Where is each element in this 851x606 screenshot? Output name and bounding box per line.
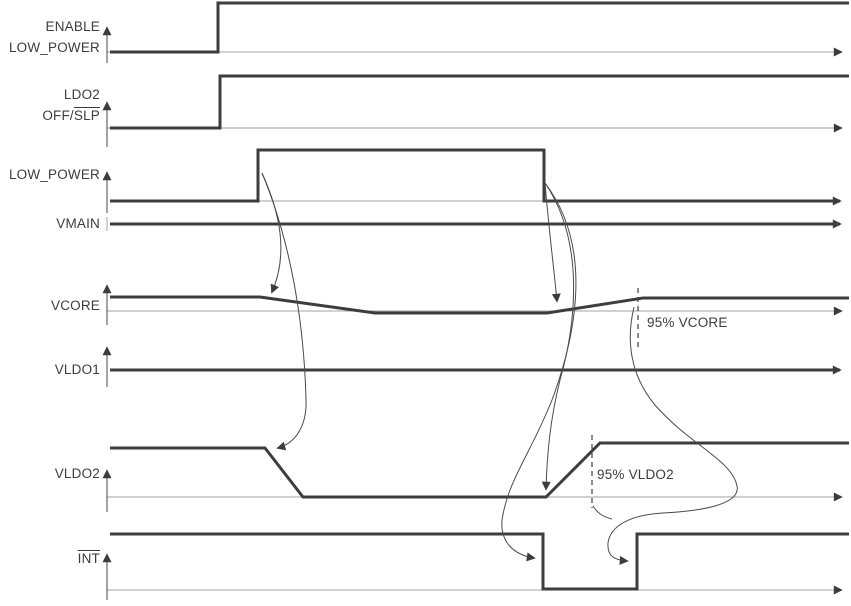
enable-wave [110, 3, 849, 52]
label-int: INT [0, 552, 100, 566]
label-ldo2-line2: OFF/SLP [0, 105, 100, 126]
label-ldo2-line1: LDO2 [0, 84, 100, 105]
conn-vcore95-to-int [608, 307, 737, 561]
label-vcore: VCORE [0, 299, 100, 313]
conn-vldo295-join [593, 506, 612, 519]
label-vldo2: VLDO2 [0, 467, 100, 481]
annotation-95-vcore: 95% VCORE [647, 316, 728, 330]
low-power-wave [110, 150, 840, 201]
annotation-95-vldo2: 95% VLDO2 [597, 468, 674, 482]
conn-lp-rise-to-vcore [262, 173, 281, 292]
label-vmain: VMAIN [0, 217, 100, 231]
label-low-power: LOW_POWER [0, 168, 100, 182]
int-wave [110, 534, 849, 589]
timing-diagram: ENABLE LOW_POWER LDO2 OFF/SLP LOW_POWER … [0, 0, 851, 606]
label-enable-line1: ENABLE [0, 16, 100, 37]
label-ldo2-off-slp: LDO2 OFF/SLP [0, 84, 100, 126]
vldo2-wave [110, 443, 849, 497]
waveform-canvas [0, 0, 851, 606]
label-ldo2-off: OFF/ [42, 108, 74, 123]
label-vldo1: VLDO1 [0, 363, 100, 377]
ldo2-wave [110, 76, 849, 128]
label-enable-low-power: ENABLE LOW_POWER [0, 16, 100, 58]
label-enable-line2: LOW_POWER [0, 37, 100, 58]
label-ldo2-slp-overlined: SLP [74, 108, 100, 123]
label-int-overlined: INT [78, 551, 100, 566]
